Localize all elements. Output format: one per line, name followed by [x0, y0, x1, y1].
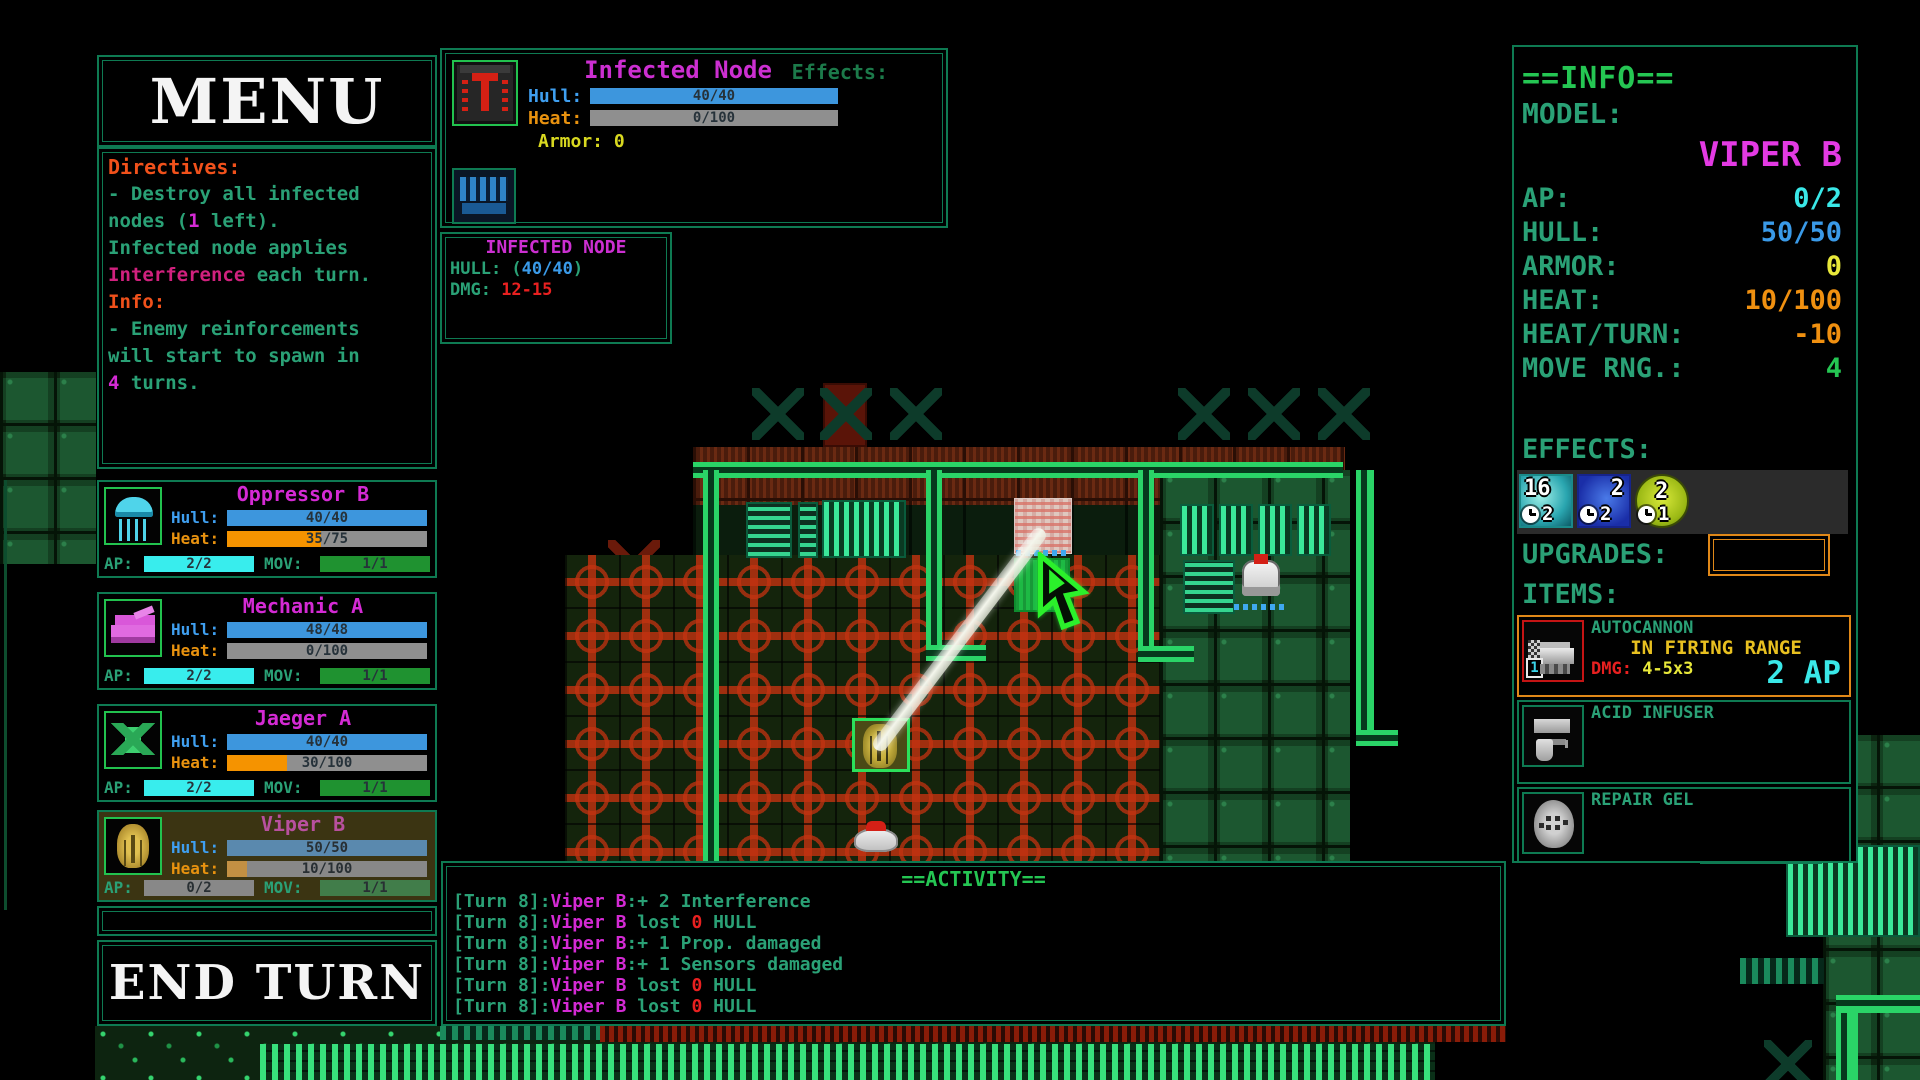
activity-log-panel: ==ACTIVITY== [Turn 8]:Viper B:+ 2 Interf…: [441, 861, 1506, 1026]
effect-turns: 1: [1658, 503, 1669, 525]
end-turn-label: END TURN: [99, 942, 435, 1024]
autocannon-icon: 1: [1522, 620, 1584, 682]
map-xmark: [752, 388, 804, 440]
tooltip-hull-line: HULL: (40/40): [450, 259, 662, 280]
bar-value: 0/100: [590, 110, 838, 126]
stat-value: 4: [1826, 353, 1842, 384]
directive-line: - Destroy all infected: [108, 181, 426, 208]
hull-bar: 48/48: [227, 622, 427, 638]
item-row-autocannon[interactable]: 1AUTOCANNONIN FIRING RANGEDMG: 4-5x32 AP: [1517, 615, 1851, 697]
map-pipe: [926, 470, 942, 660]
bar-value: 2/2: [144, 668, 254, 684]
effect-duration: 1: [1638, 503, 1669, 525]
unit-hull-row: Hull:40/40: [171, 508, 435, 527]
tooltip-title: INFECTED NODE: [450, 237, 662, 259]
heat-bar: 0/100: [227, 643, 427, 659]
ap-bar: 2/2: [144, 668, 254, 684]
target-effects-label: Effects:: [792, 60, 888, 84]
directive-line: Info:: [108, 289, 426, 316]
unit-panel-viper-b[interactable]: Viper BHull:50/50Heat:10/100AP:0/2MOV:1/…: [97, 810, 437, 902]
bar-value: 0/2: [144, 880, 254, 896]
stat-row-heat: HEAT:10/100: [1522, 285, 1842, 319]
stat-value: 50/50: [1761, 217, 1842, 248]
log-turn: [Turn 8]:: [453, 996, 551, 1017]
effect-icon-2[interactable]: 22: [1577, 474, 1631, 528]
log-unit: Viper B: [551, 996, 627, 1017]
game-screen: MENU Directives: - Destroy all infectedn…: [0, 0, 1920, 1080]
directive-text: turns.: [119, 372, 199, 394]
directive-text: nodes (: [108, 210, 188, 232]
stat-value: 0/2: [1793, 183, 1842, 214]
effect-icon-3[interactable]: 21: [1635, 474, 1689, 528]
map-pipe: [703, 470, 719, 862]
unit-heat-row: Heat:0/100: [171, 641, 435, 660]
log-text: HULL: [702, 912, 756, 933]
unit-heat-row: Heat:35/75: [171, 529, 435, 548]
ap-bar: 2/2: [144, 780, 254, 796]
bar-value: 30/100: [227, 755, 427, 771]
heat-label: Heat:: [171, 859, 227, 878]
map-xmark: [1318, 388, 1370, 440]
directive-text: Interference: [108, 264, 245, 286]
ap-label: AP:: [104, 778, 144, 797]
stat-row-armor: ARMOR:0: [1522, 251, 1842, 285]
bar-value: 10/100: [227, 861, 427, 877]
directive-text: each turn.: [245, 264, 371, 286]
hull-label: Hull:: [171, 620, 227, 639]
tooltip-dmg-label: DMG:: [450, 280, 501, 300]
ap-label: AP:: [104, 878, 144, 897]
log-text: :+ 1 Sensors damaged: [626, 954, 843, 975]
bar-value: 35/75: [227, 531, 427, 547]
heat-bar: 10/100: [227, 861, 427, 877]
machine-cabinet: [746, 502, 792, 558]
roster-empty-slot: [97, 906, 437, 936]
items-list: 1AUTOCANNONIN FIRING RANGEDMG: 4-5x32 AP…: [1517, 615, 1851, 866]
unit-name: Mechanic A: [171, 595, 435, 618]
clock-icon: [1638, 506, 1655, 523]
stat-label: AP:: [1522, 183, 1571, 214]
hull-label: Hull:: [171, 838, 227, 857]
hull-bar: 50/50: [227, 840, 427, 856]
item-dmg-label: DMG:: [1591, 659, 1642, 679]
bar-value: 40/40: [227, 510, 427, 526]
bar-value: 48/48: [227, 622, 427, 638]
model-label: MODEL:: [1522, 97, 1623, 130]
stat-label: HEAT/TURN:: [1522, 319, 1685, 350]
mov-bar: 1/1: [320, 880, 430, 896]
log-text: HULL: [702, 996, 756, 1017]
unit-heat-row: Heat:30/100: [171, 753, 435, 772]
directive-text: 4: [108, 372, 119, 394]
stat-label: HEAT:: [1522, 285, 1603, 316]
bar-value: 2/2: [144, 780, 254, 796]
item-dmg-value: 4-5x3: [1642, 659, 1693, 679]
ap-bar: 2/2: [144, 556, 254, 572]
directive-line: nodes (1 left).: [108, 208, 426, 235]
log-unit: Viper B: [551, 975, 627, 996]
bar-value: 0/100: [227, 643, 427, 659]
heat-label: Heat:: [171, 529, 227, 548]
ap-label: AP:: [104, 666, 144, 685]
upgrade-slot[interactable]: [1708, 534, 1830, 576]
map-xmark: [1764, 1040, 1812, 1080]
tooltip-dmg-value: 12-15: [501, 280, 552, 300]
directive-text: - Destroy all infected: [108, 183, 360, 205]
directive-text: Infected node applies: [108, 237, 348, 259]
enemy-robot-unit[interactable]: [1238, 552, 1284, 602]
acid-icon: [1522, 705, 1584, 767]
model-name: VIPER B: [1699, 135, 1842, 175]
log-number: 0: [691, 912, 702, 933]
effect-duration: 2: [1580, 503, 1611, 525]
target-hull-bar: 40/40: [590, 88, 838, 104]
log-text: lost: [626, 975, 691, 996]
directives-panel: Directives: - Destroy all infectednodes …: [97, 147, 437, 469]
directive-line: 4 turns.: [108, 370, 426, 397]
oppressor-portrait-icon: [104, 487, 162, 545]
heat-label: Heat:: [171, 641, 227, 660]
item-name: ACID INFUSER: [1591, 702, 1849, 723]
directives-title: Directives:: [108, 154, 426, 181]
log-number: 0: [691, 996, 702, 1017]
directive-text: Info:: [108, 291, 165, 313]
directive-text: - Enemy reinforcements: [108, 318, 360, 340]
log-text: lost: [626, 912, 691, 933]
mov-label: MOV:: [264, 878, 320, 897]
target-armor: Armor: 0: [538, 131, 946, 152]
log-turn: [Turn 8]:: [453, 912, 551, 933]
jaeger-portrait-icon: [104, 711, 162, 769]
machine-radiator: [1297, 504, 1331, 556]
target-name: Infected Node: [528, 56, 828, 84]
viper-portrait-icon: [104, 817, 162, 875]
map-pipe: [1836, 995, 1920, 1013]
activity-lines: [Turn 8]:Viper B:+ 2 Interference[Turn 8…: [453, 891, 1494, 1017]
directives-body: - Destroy all infectednodes (1 left).Inf…: [108, 181, 426, 397]
log-turn: [Turn 8]:: [453, 975, 551, 996]
stat-row-moverng: MOVE RNG.:4: [1522, 353, 1842, 387]
server-sprite-icon: [452, 168, 516, 224]
effects-strip: 1622221: [1517, 470, 1848, 534]
unit-apmov-row: AP:2/2MOV:1/1: [104, 778, 430, 797]
mov-label: MOV:: [264, 778, 320, 797]
machine-radiator: [1180, 504, 1214, 556]
effect-duration: 2: [1522, 503, 1553, 525]
directive-text: will start to spawn in: [108, 345, 360, 367]
upgrades-label: UPGRADES:: [1522, 539, 1668, 570]
bar-value: 1/1: [320, 556, 430, 572]
map-pipe: [1356, 470, 1374, 746]
effect-turns: 2: [1542, 503, 1553, 525]
node-tooltip-panel: INFECTED NODE HULL: (40/40) DMG: 12-15: [440, 232, 672, 344]
map-crates-left: [0, 372, 96, 564]
unit-hull-row: Hull:48/48: [171, 620, 435, 639]
ap-bar: 0/2: [144, 880, 254, 896]
unit-apmov-row: AP:0/2MOV:1/1: [104, 878, 430, 897]
mov-bar: 1/1: [320, 668, 430, 684]
stat-label: MOVE RNG.:: [1522, 353, 1685, 384]
directive-line: - Enemy reinforcements: [108, 316, 426, 343]
machine-cabinet: [1183, 560, 1235, 614]
heat-bar: 35/75: [227, 531, 427, 547]
log-line: [Turn 8]:Viper B lost 0 HULL: [453, 912, 1494, 933]
bar-value: 40/40: [590, 88, 838, 104]
cursor-icon: [1034, 552, 1106, 632]
gel-icon: [1522, 792, 1584, 854]
stat-value: 10/100: [1744, 285, 1842, 316]
log-text: HULL: [702, 975, 756, 996]
log-turn: [Turn 8]:: [453, 891, 551, 912]
target-heat-label: Heat:: [528, 108, 590, 129]
unit-panel-mechanic-a[interactable]: Mechanic AHull:48/48Heat:0/100AP:2/2MOV:…: [97, 592, 437, 690]
stat-value: 0: [1826, 251, 1842, 282]
item-row-gel[interactable]: REPAIR GEL: [1517, 787, 1851, 863]
bar-value: 1/1: [320, 880, 430, 896]
mov-label: MOV:: [264, 666, 320, 685]
log-text: :+ 2 Interference: [626, 891, 810, 912]
heat-bar: 30/100: [227, 755, 427, 771]
unit-roster: Oppressor BHull:40/40Heat:35/75AP:2/2MOV…: [97, 480, 437, 906]
activity-title: ==ACTIVITY==: [453, 867, 1494, 891]
directive-line: will start to spawn in: [108, 343, 426, 370]
mov-label: MOV:: [264, 554, 320, 573]
item-row-acid[interactable]: ACID INFUSER: [1517, 700, 1851, 784]
map-pipe: [693, 462, 1343, 478]
log-text: lost: [626, 996, 691, 1017]
stat-rows: AP:0/2HULL:50/50ARMOR:0HEAT:10/100HEAT/T…: [1522, 183, 1842, 387]
target-heat-bar: 0/100: [590, 110, 838, 126]
unit-hull-row: Hull:50/50: [171, 838, 435, 857]
stat-value: -10: [1793, 319, 1842, 350]
unit-name: Oppressor B: [171, 483, 435, 506]
log-unit: Viper B: [551, 954, 627, 975]
effect-value: 2: [1655, 479, 1668, 504]
map-xmark: [1248, 388, 1300, 440]
tooltip-hull-value: 40/40: [522, 259, 573, 279]
map-xmark: [890, 388, 942, 440]
stat-label: HULL:: [1522, 217, 1603, 248]
log-unit: Viper B: [551, 933, 627, 954]
effects-label: EFFECTS:: [1522, 434, 1652, 465]
log-unit: Viper B: [551, 891, 627, 912]
stat-label: ARMOR:: [1522, 251, 1620, 282]
mechanic-portrait-icon: [104, 599, 162, 657]
tooltip-hull-close: ): [573, 259, 583, 279]
infected-node-portrait-icon: [452, 60, 518, 126]
effect-turns: 2: [1600, 503, 1611, 525]
clock-icon: [1580, 506, 1597, 523]
unit-panel-jaeger-a[interactable]: Jaeger AHull:40/40Heat:30/100AP:2/2MOV:1…: [97, 704, 437, 802]
directive-text: left).: [200, 210, 280, 232]
effect-icon-1[interactable]: 162: [1519, 474, 1573, 528]
floor-reddots: [600, 1026, 1506, 1042]
log-unit: Viper B: [551, 912, 627, 933]
hull-bar: 40/40: [227, 734, 427, 750]
target-armor-label: Armor:: [538, 131, 603, 152]
hull-bar: 40/40: [227, 510, 427, 526]
robot-health-dots: [1234, 604, 1288, 610]
log-number: 0: [691, 975, 702, 996]
map-left-line: [4, 480, 7, 910]
item-ap-cost: 2 AP: [1766, 655, 1841, 691]
effect-value: 2: [1611, 476, 1624, 501]
unit-name: Viper B: [171, 813, 435, 836]
log-line: [Turn 8]:Viper B:+ 2 Interference: [453, 891, 1494, 912]
directive-line: Infected node applies: [108, 235, 426, 262]
item-count-badge: 1: [1526, 658, 1543, 678]
unit-hull-row: Hull:40/40: [171, 732, 435, 751]
mov-bar: 1/1: [320, 556, 430, 572]
log-turn: [Turn 8]:: [453, 933, 551, 954]
log-turn: [Turn 8]:: [453, 954, 551, 975]
bar-value: 1/1: [320, 668, 430, 684]
menu-title: MENU: [99, 57, 435, 145]
machine-radiator: [822, 500, 906, 558]
floor-tealdots: [440, 1026, 600, 1040]
effect-value: 16: [1524, 476, 1551, 501]
heat-label: Heat:: [171, 753, 227, 772]
directive-text: 1: [188, 210, 199, 232]
map-xmark: [1178, 388, 1230, 440]
stat-row-heatturn: HEAT/TURN:-10: [1522, 319, 1842, 353]
bar-value: 2/2: [144, 556, 254, 572]
unit-apmov-row: AP:2/2MOV:1/1: [104, 554, 430, 573]
item-name: REPAIR GEL: [1591, 789, 1849, 810]
item-name: AUTOCANNON: [1591, 617, 1849, 638]
info-title: ==INFO==: [1522, 61, 1675, 96]
map-pipe: [1138, 470, 1154, 662]
bar-value: 1/1: [320, 780, 430, 796]
unit-panel-oppressor-b[interactable]: Oppressor BHull:40/40Heat:35/75AP:2/2MOV…: [97, 480, 437, 578]
hull-label: Hull:: [171, 508, 227, 527]
machine-radiator: [1258, 504, 1292, 556]
target-armor-value: 0: [614, 131, 625, 152]
stat-row-ap: AP:0/2: [1522, 183, 1842, 217]
clock-icon: [1522, 506, 1539, 523]
map-xmark: [820, 388, 872, 440]
unit-name: Jaeger A: [171, 707, 435, 730]
target-info-panel: Infected Node Hull: 40/40 Heat: 0/100 Ar…: [440, 48, 948, 228]
log-line: [Turn 8]:Viper B:+ 1 Prop. damaged: [453, 933, 1494, 954]
tooltip-hull-label: HULL: (: [450, 259, 522, 279]
info-panel: ==INFO== MODEL: VIPER B AP:0/2HULL:50/50…: [1512, 45, 1858, 863]
bar-value: 50/50: [227, 840, 427, 856]
ap-label: AP:: [104, 554, 144, 573]
items-label: ITEMS:: [1522, 579, 1620, 610]
machine-cabinet: [798, 502, 818, 558]
floor-tealdots: [1740, 958, 1824, 984]
log-line: [Turn 8]:Viper B lost 0 HULL: [453, 996, 1494, 1017]
machine-radiator: [1219, 504, 1253, 556]
log-text: :+ 1 Prop. damaged: [626, 933, 821, 954]
menu-panel[interactable]: MENU: [97, 55, 437, 147]
bar-value: 40/40: [227, 734, 427, 750]
log-line: [Turn 8]:Viper B:+ 1 Sensors damaged: [453, 954, 1494, 975]
mov-bar: 1/1: [320, 780, 430, 796]
log-line: [Turn 8]:Viper B lost 0 HULL: [453, 975, 1494, 996]
end-turn-button[interactable]: END TURN: [97, 940, 437, 1026]
target-hull-label: Hull:: [528, 86, 590, 107]
directive-line: Interference each turn.: [108, 262, 426, 289]
unit-apmov-row: AP:2/2MOV:1/1: [104, 666, 430, 685]
unit-heat-row: Heat:10/100: [171, 859, 435, 878]
hull-label: Hull:: [171, 732, 227, 751]
tooltip-dmg-line: DMG: 12-15: [450, 280, 662, 301]
map-pipe: [1138, 646, 1194, 662]
stat-row-hull: HULL:50/50: [1522, 217, 1842, 251]
floor-dotband: [260, 1044, 1435, 1080]
map-pipe: [1356, 730, 1398, 746]
spider-unit[interactable]: [850, 818, 902, 862]
